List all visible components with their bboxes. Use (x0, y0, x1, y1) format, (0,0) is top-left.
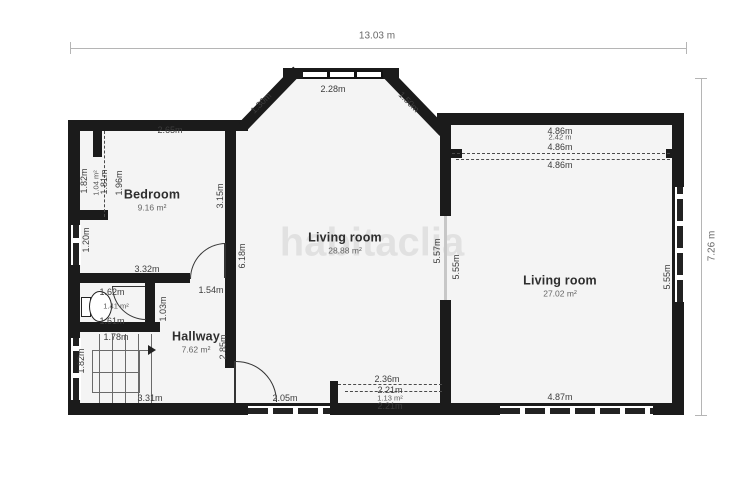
room-label: Living room28.88 m² (308, 231, 382, 256)
dimension-label: 5.57m (432, 238, 442, 263)
dimension-label: 4.87m (547, 392, 572, 402)
dimension-label: 2.28m (320, 84, 345, 94)
dimension-label: 5.55m (451, 254, 461, 279)
dimension-label: 1.50m (397, 90, 422, 115)
dimension-label: 1.81m (99, 169, 109, 194)
dimension-label: 4.86m (547, 160, 572, 170)
dimension-label: 13.03 m (359, 31, 395, 42)
dimension-label: 3.31m (137, 393, 162, 403)
dimension-label: 1.54m (198, 285, 223, 295)
dimension-label: 3.15m (215, 183, 225, 208)
room-name: Bedroom (124, 188, 180, 202)
room-name: Living room (523, 274, 597, 288)
dimension-label: 7.26 m (707, 231, 718, 262)
room-area: 28.88 m² (308, 246, 382, 256)
dimension-label: 2.05m (272, 393, 297, 403)
dimension-label: 2.65m (157, 125, 182, 135)
dimension-label: 1.41 m² (103, 302, 128, 311)
dimension-label: 1.62m (99, 287, 124, 297)
dimension-label: 2.36m (374, 374, 399, 384)
dimension-label: 1.20m (81, 227, 91, 252)
room-label: Bedroom9.16 m² (124, 188, 180, 213)
dimension-label: 1.96m (114, 170, 124, 195)
room-label: Living room27.02 m² (523, 274, 597, 299)
dimension-label: 1.03m (158, 296, 168, 321)
labels-layer: 13.03 m7.26 m2.65m1.30m2.28m1.50m4.86m2.… (0, 0, 750, 500)
room-label: Hallway7.62 m² (172, 330, 220, 355)
room-name: Hallway (172, 330, 220, 344)
dimension-label: 1.78m (103, 332, 128, 342)
room-area: 27.02 m² (523, 289, 597, 299)
dimension-label: 4.86m (547, 142, 572, 152)
dimension-label: 1.61m (99, 316, 124, 326)
dimension-label: 2.21m (377, 401, 402, 411)
dimension-label: 5.55m (662, 264, 672, 289)
dimension-label: 2.42 m (549, 133, 572, 142)
room-name: Living room (308, 231, 382, 245)
dimension-label: 1.82m (79, 168, 89, 193)
dimension-label: 1.30m (249, 91, 274, 116)
room-area: 7.62 m² (172, 345, 220, 355)
room-area: 9.16 m² (124, 203, 180, 213)
dimension-label: 6.18m (237, 243, 247, 268)
dimension-label: 3.32m (134, 264, 159, 274)
dimension-label: 1.82m (76, 348, 86, 373)
floor-plan: habitaclia (0, 0, 750, 500)
